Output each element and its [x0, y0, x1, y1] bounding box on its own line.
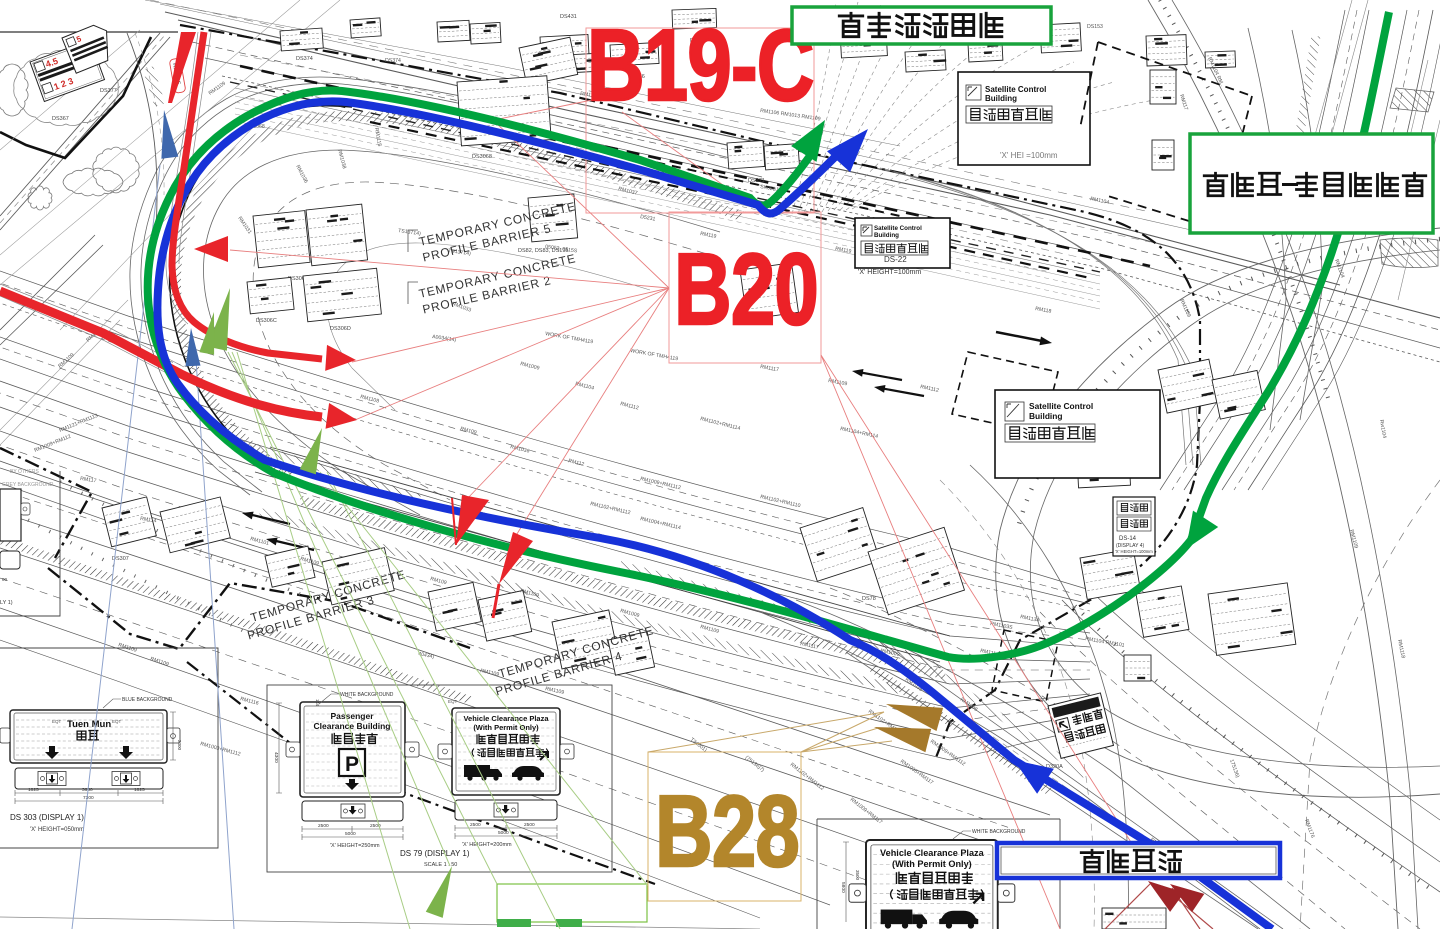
svg-text:5800: 5800 — [840, 882, 846, 893]
svg-text:144: 144 — [315, 699, 320, 707]
svg-text:DS-22: DS-22 — [884, 255, 907, 264]
svg-text:DS 79 (DISPLAY 1): DS 79 (DISPLAY 1) — [400, 849, 470, 858]
svg-text:5000: 5000 — [498, 830, 509, 836]
svg-text:DS3068: DS3068 — [472, 154, 492, 160]
svg-text:4300: 4300 — [273, 752, 279, 763]
svg-text:Building: Building — [874, 232, 899, 239]
svg-text:DS-14: DS-14 — [1119, 536, 1137, 542]
svg-text:Building: Building — [985, 94, 1017, 103]
svg-text:5000: 5000 — [345, 831, 356, 837]
svg-text:Tuen Mun: Tuen Mun — [67, 719, 111, 730]
svg-text:Vehicle Clearance Plaza: Vehicle Clearance Plaza — [463, 714, 549, 723]
svg-text:DS153: DS153 — [1087, 24, 1103, 30]
svg-text:Satellite Control: Satellite Control — [985, 85, 1046, 94]
svg-text:BY OTHERS: BY OTHERS — [10, 469, 39, 475]
svg-text:'X' HEIGHT=050mm: 'X' HEIGHT=050mm — [30, 827, 84, 833]
svg-text:3500: 3500 — [855, 870, 860, 881]
svg-text:'X' HEIGHT=200mm: 'X' HEIGHT=200mm — [462, 842, 512, 848]
svg-text:DS271: DS271 — [748, 178, 765, 184]
svg-text:Vehicle Clearance Plaza: Vehicle Clearance Plaza — [880, 848, 985, 858]
svg-text:00: 00 — [2, 577, 8, 582]
svg-text:Passenger: Passenger — [331, 711, 375, 721]
svg-text:B20: B20 — [674, 234, 818, 346]
svg-text:1825: 1825 — [134, 787, 145, 793]
svg-text:(With Permit Only): (With Permit Only) — [892, 859, 972, 869]
svg-text:DS306D: DS306D — [330, 326, 351, 332]
svg-text:SCALE 1 : 50: SCALE 1 : 50 — [424, 862, 457, 868]
svg-text:DS374: DS374 — [296, 56, 313, 62]
svg-text:Building: Building — [1029, 411, 1063, 421]
svg-text:EQT: EQT — [112, 719, 122, 724]
svg-text:2500: 2500 — [524, 822, 535, 828]
svg-text:Satellite Control: Satellite Control — [874, 225, 922, 232]
svg-text:2500: 2500 — [470, 822, 481, 828]
svg-text:EQT: EQT — [52, 719, 62, 724]
svg-text:LY 1): LY 1) — [0, 600, 13, 606]
svg-text:WHITE BACKGROUND: WHITE BACKGROUND — [340, 692, 394, 698]
svg-text:'X' HEI =100mm: 'X' HEI =100mm — [1000, 151, 1058, 160]
svg-text:2500: 2500 — [318, 823, 329, 829]
svg-text:DS367: DS367 — [52, 116, 69, 122]
svg-text:P: P — [345, 753, 359, 776]
svg-text:Clearance Building: Clearance Building — [314, 721, 391, 731]
svg-text:2300: 2300 — [177, 740, 182, 751]
svg-text:WHITE BACKGROUND: WHITE BACKGROUND — [972, 829, 1026, 835]
svg-text:EQT: EQT — [448, 699, 458, 704]
svg-text:(With Permit Only): (With Permit Only) — [473, 723, 539, 732]
svg-text:Satellite Control: Satellite Control — [1029, 401, 1093, 411]
svg-text:BLUE BACKGROUND: BLUE BACKGROUND — [122, 697, 173, 703]
svg-text:B28: B28 — [655, 776, 799, 888]
svg-text:DS377: DS377 — [100, 88, 117, 94]
svg-text:GREY BACKGROUND: GREY BACKGROUND — [2, 482, 54, 488]
svg-text:'X' HEIGHT=100mm: 'X' HEIGHT=100mm — [1115, 549, 1153, 554]
svg-text:DS306C: DS306C — [256, 318, 277, 324]
svg-text:B19-C: B19-C — [587, 10, 814, 122]
svg-text:DS431: DS431 — [560, 14, 577, 20]
svg-text:DS 303 (DISPLAY 1): DS 303 (DISPLAY 1) — [10, 813, 84, 822]
svg-text:'X' HEIGHT=250mm: 'X' HEIGHT=250mm — [330, 843, 380, 849]
svg-text:'X' HEIGHT=100mm: 'X' HEIGHT=100mm — [858, 269, 921, 276]
svg-text:DS374: DS374 — [385, 58, 401, 64]
svg-text:7300: 7300 — [83, 795, 94, 801]
svg-text:1825: 1825 — [28, 787, 39, 793]
svg-text:DS78: DS78 — [862, 596, 876, 602]
